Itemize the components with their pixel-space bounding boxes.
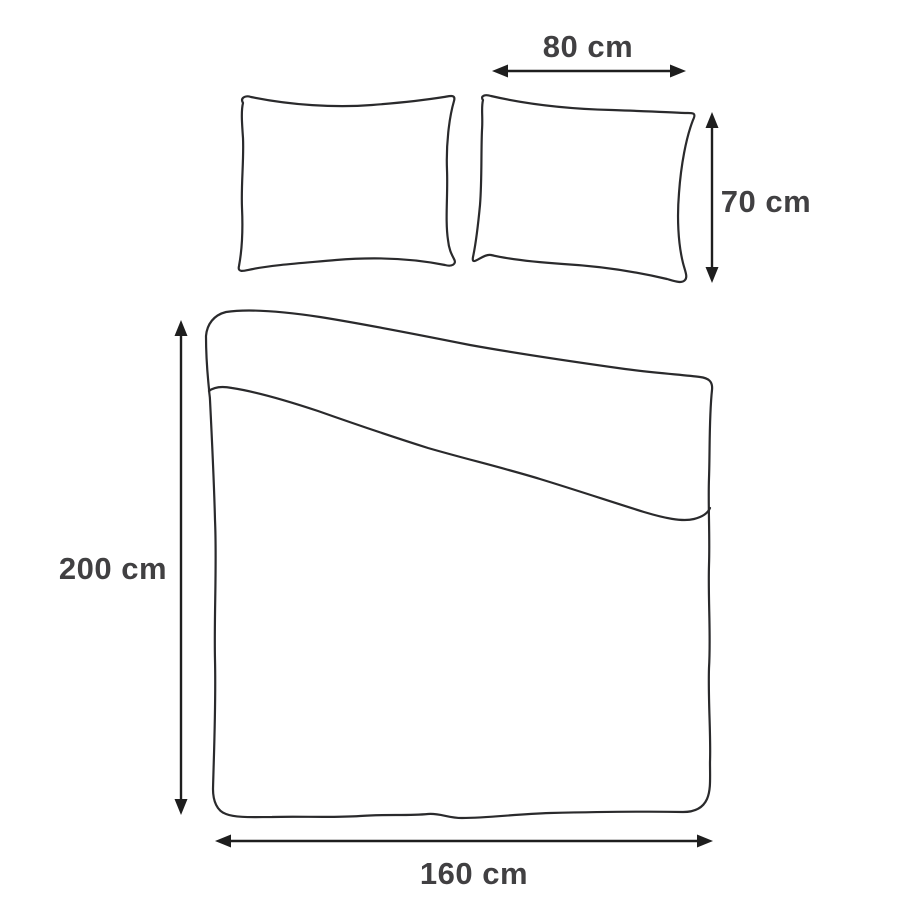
duvet-width-arrow [215,835,713,848]
pillow-height-arrow [706,112,719,283]
arrowhead-right-icon [670,65,686,78]
arrowhead-down-icon [175,799,188,815]
duvet-fold-line [209,387,710,520]
arrowhead-up-icon [706,112,719,128]
pillow-height-label: 70 cm [721,184,811,219]
arrowhead-left-icon [215,835,231,848]
arrowhead-down-icon [706,267,719,283]
arrowhead-right-icon [697,835,713,848]
pillow-width-label: 80 cm [543,29,633,64]
arrowhead-up-icon [175,320,188,336]
diagram-svg: 80 cm 70 cm 200 cm 160 cm [0,0,920,920]
outline-drawings [206,95,712,818]
duvet-outline [206,311,712,818]
pillow-width-arrow [492,65,686,78]
dimension-labels: 80 cm 70 cm 200 cm 160 cm [59,29,811,891]
arrowhead-left-icon [492,65,508,78]
duvet-length-label: 200 cm [59,551,167,586]
duvet-length-arrow [175,320,188,815]
pillow-left-outline [239,96,455,271]
pillow-right-outline [473,95,695,282]
duvet-width-label: 160 cm [420,856,528,891]
bedding-dimensions-diagram: 80 cm 70 cm 200 cm 160 cm [0,0,920,920]
